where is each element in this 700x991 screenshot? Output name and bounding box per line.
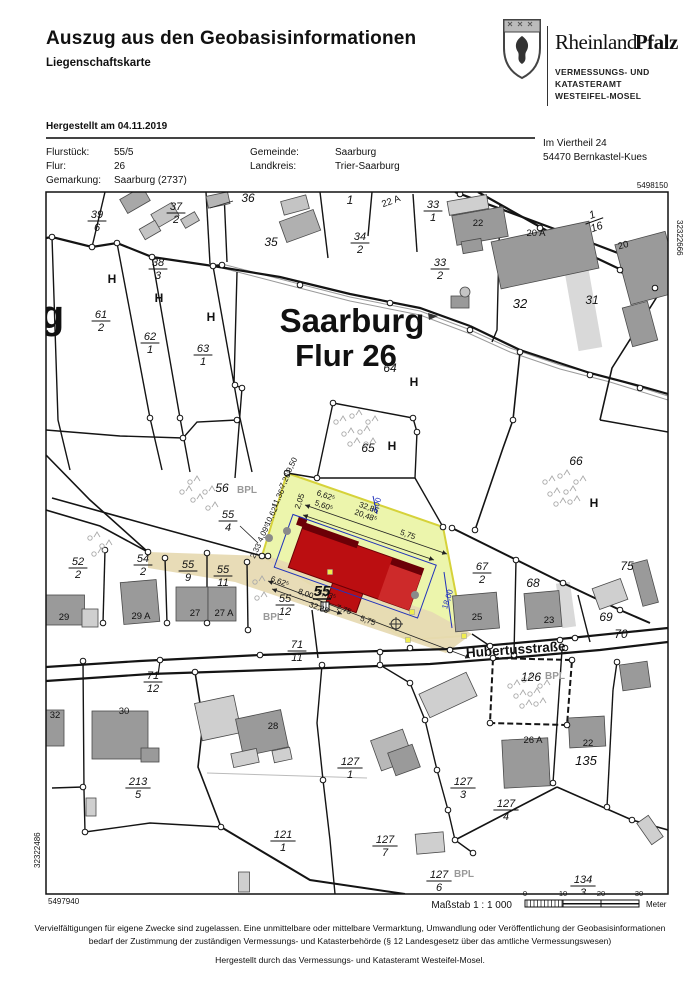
land-use-h-mark: H [155, 291, 164, 305]
coord-top-right: 5498150 [637, 181, 669, 190]
parcel-label: 70 [614, 627, 628, 641]
map-label: 2 [172, 214, 179, 226]
map-label: 62 [144, 331, 156, 343]
boundary-point [517, 349, 523, 355]
boundary-point [470, 850, 476, 856]
map-label: 9 [185, 572, 191, 584]
map-label: 3 [580, 887, 587, 899]
scale-unit: Meter [646, 900, 667, 909]
land-use-h-mark: H [410, 375, 419, 389]
parcel-label: 22 [473, 218, 484, 229]
boundary-point [314, 475, 320, 481]
building [451, 296, 469, 308]
land-use-h-mark: H [108, 272, 117, 286]
municipality-info: Gemeinde:Saarburg Landkreis:Trier-Saarbu… [250, 146, 400, 174]
parcel-label: 66 [569, 454, 583, 468]
bpl-label: BPL [263, 612, 283, 623]
coord-left: 32322486 [33, 832, 42, 868]
field-flur: Flur:26 [46, 160, 187, 174]
parcel-label: 22 [583, 738, 594, 749]
map-label: 4 [225, 522, 231, 534]
boundary-point [257, 652, 263, 658]
parcel-label: 126 [521, 670, 541, 684]
boundary-point [513, 557, 519, 563]
survey-dot [283, 527, 291, 535]
boundary-point [617, 607, 623, 613]
parcel-label: 25 [472, 612, 483, 623]
boundary-point [219, 262, 225, 268]
boundary-point [587, 372, 593, 378]
page-title: Auszug aus den Geobasisinformationen [46, 28, 416, 50]
field-flurstueck: Flurstück:55/5 [46, 146, 187, 160]
building [415, 832, 445, 854]
boundary-point [452, 837, 458, 843]
parcel-label: 135 [575, 753, 597, 768]
boundary-point [177, 415, 183, 421]
boundary-point [147, 415, 153, 421]
survey-dot [411, 591, 419, 599]
made-by-line: Hergestellt durch das Vermessungs- und K… [0, 954, 700, 967]
building [86, 798, 96, 816]
boundary-point [330, 400, 336, 406]
land-use-h-mark: H [207, 310, 216, 324]
map-label: 1 [147, 344, 153, 356]
boundary-point [637, 385, 643, 391]
boundary-point [234, 417, 240, 423]
parcel-label: 26 A [523, 735, 543, 746]
state-logo: RheinlandPfalz VERMESSUNGS- UND KATASTER… [498, 14, 698, 110]
parcel-label: 65 [361, 441, 375, 455]
land-use-h-mark: H [388, 439, 397, 453]
map-label: 2 [436, 270, 443, 282]
map-label: 55 [279, 593, 292, 605]
boundary-point [472, 527, 478, 533]
parcel-label: 28 [268, 721, 279, 732]
land-use-h-mark: H [590, 496, 599, 510]
map-label: 127 [454, 776, 473, 788]
map-label: 134 [574, 874, 592, 886]
map-label: 54 [137, 553, 149, 565]
parcel-label: 69 [599, 610, 613, 624]
map-label: 2 [478, 574, 485, 586]
map-label: 38 [152, 257, 165, 269]
scale-tick: 30 [635, 889, 643, 898]
map-label: 2 [97, 322, 104, 334]
boundary-point [265, 553, 271, 559]
parcel-boundary [52, 787, 83, 788]
map-label: 3 [460, 789, 467, 801]
subject-vertex-mark [328, 570, 333, 575]
boundary-point [259, 553, 265, 559]
field-gemeinde: Gemeinde:Saarburg [250, 146, 400, 160]
parcel-label: 32 [50, 710, 61, 721]
map-label: 127 [497, 798, 516, 810]
map-label: 1 [280, 842, 286, 854]
parcel-label: 30 [119, 706, 130, 717]
parcel-label: 68 [526, 576, 540, 590]
parcel-label: 35 [264, 235, 278, 249]
produced-date: Hergestellt am 04.11.2019 [46, 121, 167, 132]
boundary-point [467, 327, 473, 333]
boundary-point [114, 240, 120, 246]
map-label: 7 [382, 847, 389, 859]
cadastral-extract-page: { "header":{ "title":"Auszug aus den Geo… [0, 0, 700, 991]
boundary-point [297, 282, 303, 288]
office-name: VERMESSUNGS- UND KATASTERAMT WESTEIFEL-M… [555, 66, 650, 102]
boundary-point [80, 658, 86, 664]
boundary-point [192, 669, 198, 675]
boundary-point [244, 559, 250, 565]
boundary-point [100, 620, 106, 626]
boundary-point [377, 662, 383, 668]
map-label: 2 [356, 244, 363, 256]
boundary-point [218, 824, 224, 830]
map-label: 213 [128, 776, 148, 788]
logo-divider [547, 26, 548, 106]
parcel-label: 29 [59, 612, 70, 623]
subject-vertex-mark [410, 610, 415, 615]
parcel-label: 1 [347, 193, 354, 207]
parcel-label: 23 [544, 615, 555, 626]
map-label: 52 [72, 556, 84, 568]
clipped-town-letter: g [40, 293, 64, 337]
boundary-point [604, 804, 610, 810]
boundary-point [445, 807, 451, 813]
scale-tick: 20 [597, 889, 605, 898]
map-label: 4 [503, 811, 509, 823]
map-label: 127 [376, 834, 395, 846]
building [194, 695, 241, 740]
map-label: 71 [291, 639, 303, 651]
map-label: 33 [434, 257, 447, 269]
boundary-point [204, 620, 210, 626]
building [82, 609, 98, 627]
legal-footer: Vervielfältigungen für eigene Zwecke sin… [0, 922, 700, 967]
state-wordmark: RheinlandPfalz [555, 30, 678, 55]
parcel-number: 1343 [570, 874, 595, 899]
boundary-point [629, 817, 635, 823]
parcel-label: 27 [190, 608, 201, 619]
boundary-point [434, 767, 440, 773]
page-subtitle: Liegenschaftskarte [46, 57, 151, 69]
bpl-label: BPL [237, 485, 257, 496]
boundary-point [239, 385, 245, 391]
utility-structure [460, 287, 470, 297]
boundary-point [210, 263, 216, 269]
boundary-point [510, 417, 516, 423]
boundary-point [320, 777, 326, 783]
map-label: 37 [170, 201, 183, 213]
coord-bottom-left: 5497940 [48, 897, 80, 906]
scale-tick: 0 [523, 889, 527, 898]
boundary-point [440, 524, 446, 530]
subject-vertex-mark [406, 638, 411, 643]
parcel-label: 56 [215, 481, 229, 495]
boundary-point [162, 555, 168, 561]
divider-rule [46, 137, 535, 139]
cadastral-map: 3963723836126216313423313321165545225425… [0, 180, 700, 920]
coord-right: 32322666 [675, 220, 684, 256]
map-label: 61 [95, 309, 107, 321]
bpl-label: BPL [545, 671, 565, 682]
boundary-point [407, 645, 413, 651]
boundary-point [377, 649, 383, 655]
map-label: 127 [430, 869, 449, 881]
building [619, 661, 650, 691]
map-label: 12 [147, 683, 159, 695]
map-label: 2 [139, 566, 146, 578]
parcel-label: 27 A [214, 608, 234, 619]
boundary-point [319, 662, 325, 668]
boundary-point [447, 647, 453, 653]
map-label: 63 [197, 343, 210, 355]
parcel-label: 75 [620, 559, 634, 573]
map-label: 11 [291, 652, 302, 664]
boundary-point [560, 580, 566, 586]
map-label: 2 [74, 569, 81, 581]
map-label: 121 [274, 829, 292, 841]
boundary-point [652, 285, 658, 291]
subject-vertex-mark [462, 634, 467, 639]
boundary-point [180, 435, 186, 441]
map-label: 34 [354, 231, 366, 243]
map-label: 67 [476, 561, 489, 573]
map-label: 55 [222, 509, 235, 521]
boundary-point [569, 657, 575, 663]
building [239, 872, 250, 892]
boundary-point [572, 635, 578, 641]
field-landkreis: Landkreis:Trier-Saarburg [250, 160, 400, 174]
scale-label: Maßstab 1 : 1 000 [431, 900, 512, 911]
boundary-point [245, 627, 251, 633]
map-label: 3 [155, 270, 162, 282]
parcel-label: 32 [513, 296, 528, 311]
boundary-point [80, 784, 86, 790]
map-label: 39 [91, 209, 103, 221]
map-label: 6 [436, 882, 443, 894]
boundary-point [414, 429, 420, 435]
boundary-point [164, 620, 170, 626]
boundary-point [232, 382, 238, 388]
map-label: 71 [147, 670, 159, 682]
boundary-point [157, 657, 163, 663]
boundary-point [564, 722, 570, 728]
town-name-label: Saarburg [280, 302, 425, 339]
boundary-point [617, 267, 623, 273]
parcel-label: 29 A [131, 611, 151, 622]
flur-label: Flur 26 [295, 338, 397, 373]
map-label: 5 [135, 789, 142, 801]
parcel-label: 20 A [526, 228, 546, 239]
map-label: 1 [347, 769, 353, 781]
boundary-point [204, 550, 210, 556]
parcel-label: 36 [241, 191, 255, 205]
boundary-point [487, 720, 493, 726]
map-label: 55 [182, 559, 195, 571]
boundary-point [410, 415, 416, 421]
map-label: 6 [94, 222, 101, 234]
boundary-point [89, 244, 95, 250]
map-label: 55 [217, 564, 230, 576]
boundary-point [449, 525, 455, 531]
boundary-point [614, 659, 620, 665]
boundary-point [49, 234, 55, 240]
building [92, 711, 148, 759]
recipient-address: Im Viertheil 24 54470 Bernkastel-Kues [543, 137, 647, 165]
map-label: 33 [427, 199, 440, 211]
coat-of-arms-icon [498, 14, 546, 106]
boundary-point [422, 717, 428, 723]
map-label: 1 [200, 356, 206, 368]
boundary-point [407, 680, 413, 686]
map-label: 127 [341, 756, 360, 768]
building [141, 748, 159, 762]
map-label: 1 [430, 212, 436, 224]
map-label: 11 [217, 577, 228, 589]
boundary-point [550, 780, 556, 786]
boundary-point [82, 829, 88, 835]
parcel-boundary [247, 562, 248, 630]
parcel-label: 31 [585, 293, 598, 307]
bpl-label: BPL [454, 869, 474, 880]
scale-tick: 10 [559, 889, 567, 898]
